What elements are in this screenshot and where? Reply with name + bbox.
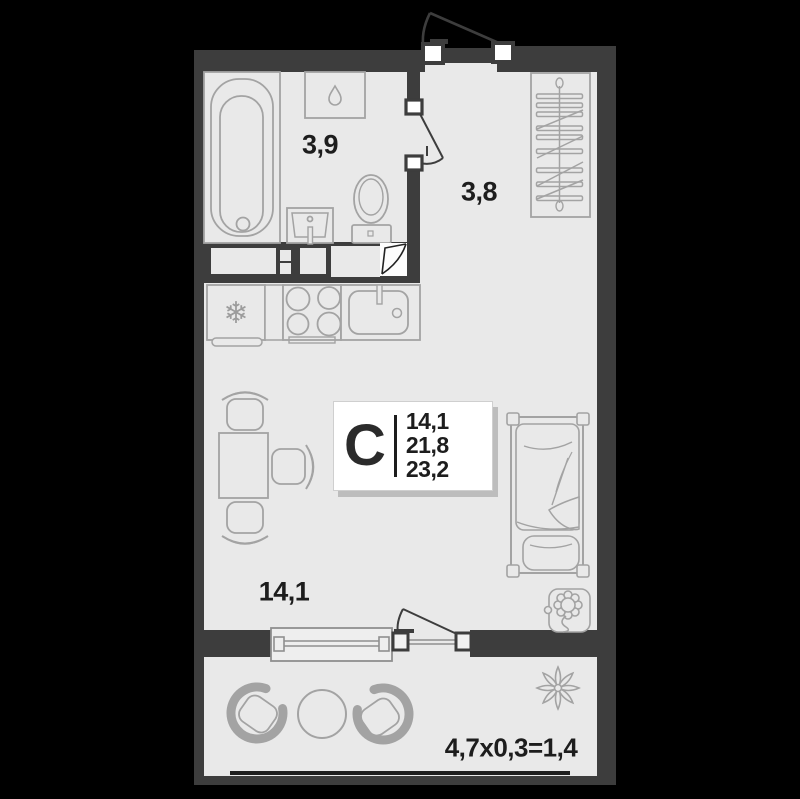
card-divider <box>394 415 397 477</box>
snowflake-icon: ❄ <box>223 297 248 330</box>
armchair-right-icon <box>357 688 409 740</box>
area-no-balcony: 21,8 <box>406 434 449 458</box>
toilet-icon <box>352 175 391 243</box>
window-icon <box>271 628 392 661</box>
hallway-area-label: 3,8 <box>461 177 497 208</box>
plant-pot-icon <box>545 589 591 632</box>
area-total: 23,2 <box>406 458 449 482</box>
unit-info-card: С 14,1 21,8 23,2 <box>333 401 493 491</box>
flower-icon <box>537 667 579 709</box>
stove-icon <box>283 285 341 343</box>
bathroom-area-label: 3,9 <box>302 130 338 161</box>
table-icon <box>219 433 268 498</box>
unit-type-letter: С <box>344 417 384 475</box>
bathtub-icon <box>204 72 280 243</box>
wardrobe-icon <box>531 73 590 217</box>
bathroom-door-icon <box>406 100 443 170</box>
chair-right-icon <box>272 445 314 489</box>
boiler-icon <box>305 72 365 118</box>
entry-door-icon <box>423 13 513 63</box>
vent-duct-icon <box>380 243 407 276</box>
chair-bottom-icon <box>222 502 268 544</box>
balcony-door-icon <box>393 609 471 650</box>
balcony-area-label: 4,7x0,3=1,4 <box>445 733 578 764</box>
washbasin-icon <box>287 208 333 244</box>
unit-areas: 14,1 21,8 23,2 <box>406 410 449 482</box>
armchair-left-icon <box>231 687 283 739</box>
flower-blossom <box>554 591 582 619</box>
chair-top-icon <box>222 392 268 430</box>
kitchen-counter <box>265 285 283 340</box>
round-table-icon <box>298 690 346 738</box>
bed-icon <box>507 413 589 577</box>
fridge-icon: ❄ <box>207 285 265 346</box>
kitchen-sink-icon <box>341 285 420 340</box>
living-area-label: 14,1 <box>259 577 310 608</box>
area-living: 14,1 <box>406 410 449 434</box>
furniture-layer: ❄ <box>0 0 800 799</box>
floor-plan: ❄ <box>0 0 800 799</box>
